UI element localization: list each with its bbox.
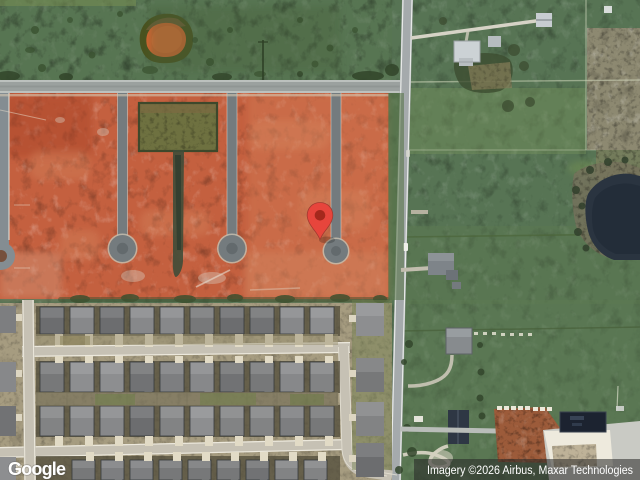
svg-text:Google: Google <box>8 459 66 479</box>
svg-text:Imagery ©2026 Airbus, Maxar Te: Imagery ©2026 Airbus, Maxar Technologies <box>427 463 633 477</box>
